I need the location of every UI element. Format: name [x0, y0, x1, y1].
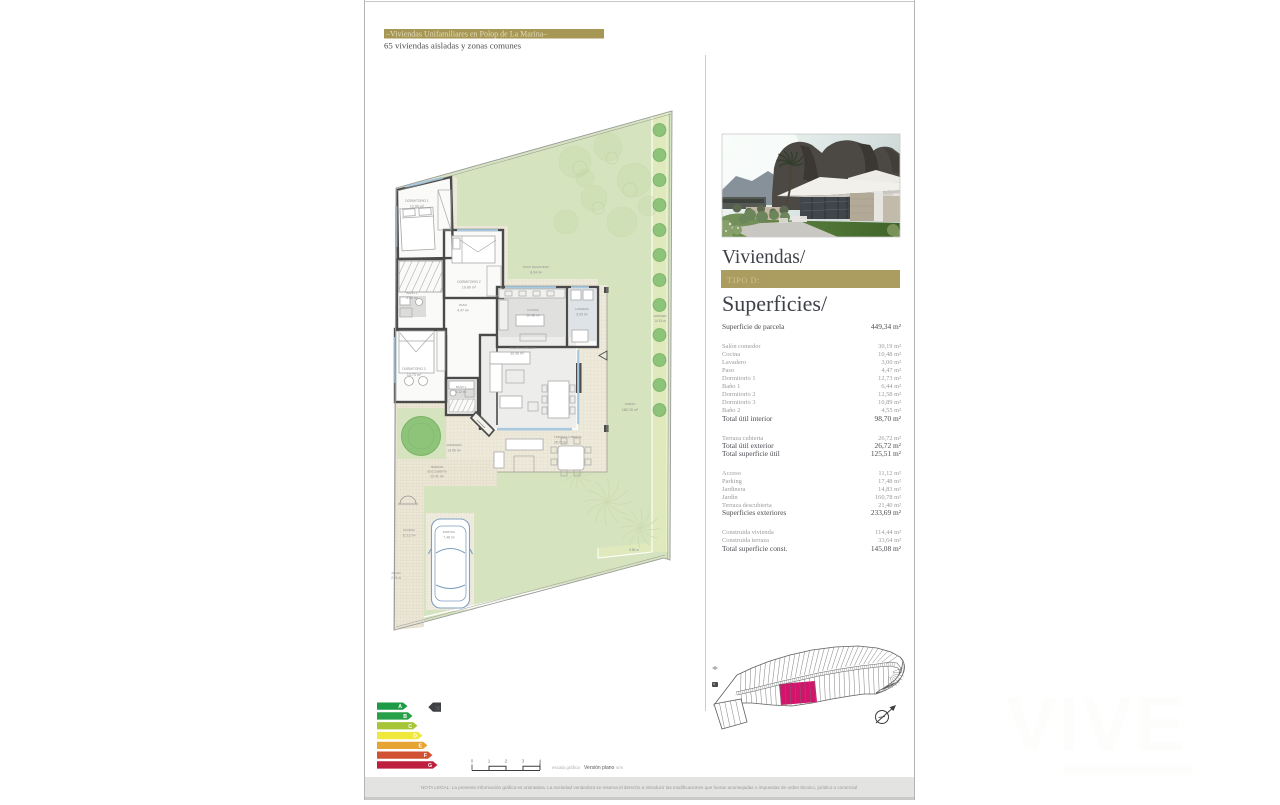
svg-text:Jardinera: Jardinera [722, 486, 746, 493]
svg-text:145,08 m²: 145,08 m² [871, 544, 902, 553]
svg-text:4.58 m²: 4.58 m² [406, 296, 418, 300]
svg-text:35: 35 [435, 705, 440, 710]
svg-text:Cocina: Cocina [722, 351, 740, 358]
svg-text:449,34 m²: 449,34 m² [871, 322, 902, 331]
svg-text:33,64 m²: 33,64 m² [878, 537, 901, 544]
svg-text:NOTA LEGAL: La presente inform: NOTA LEGAL: La presente información gráf… [421, 785, 857, 790]
svg-text:COCINA: COCINA [527, 308, 539, 312]
svg-text:PASO: PASO [459, 303, 468, 307]
svg-text:JARDINERA: JARDINERA [653, 315, 667, 318]
svg-text:JARDINERA: JARDINERA [446, 443, 462, 447]
svg-text:Dormitorio 2: Dormitorio 2 [722, 391, 756, 398]
svg-text:s/m: s/m [616, 765, 624, 770]
svg-text:Baño 1: Baño 1 [722, 383, 740, 390]
svg-text:233,69 m²: 233,69 m² [871, 508, 902, 517]
svg-text:DORMITORIO 2: DORMITORIO 2 [457, 280, 481, 284]
svg-text:BAÑO 2: BAÑO 2 [456, 384, 467, 389]
svg-text:3,00 m²: 3,00 m² [881, 359, 901, 366]
svg-text:Paso: Paso [722, 367, 734, 374]
svg-text:Construida vivienda: Construida vivienda [722, 529, 774, 536]
svg-text:4,47 m²: 4,47 m² [881, 367, 901, 374]
svg-text:Superficies exteriores: Superficies exteriores [722, 508, 786, 517]
svg-text:DORMITORIO 3: DORMITORIO 3 [402, 367, 426, 371]
svg-text:G: G [428, 763, 432, 769]
svg-text:Parking: Parking [722, 478, 743, 485]
svg-text:5.12 m²: 5.12 m² [456, 390, 467, 394]
svg-text:4.47 m²: 4.47 m² [457, 309, 469, 313]
svg-text:SALÓN COMEDOR: SALÓN COMEDOR [510, 345, 538, 350]
svg-text:E: E [419, 743, 423, 749]
svg-text:30.98 m²: 30.98 m² [510, 352, 525, 356]
svg-text:TERRAZA CUBIERTA: TERRAZA CUBIERTA [554, 435, 582, 439]
svg-text:Baño 2: Baño 2 [722, 407, 740, 414]
svg-text:6,44 m²: 6,44 m² [881, 383, 901, 390]
svg-text:Construida terraza: Construida terraza [722, 537, 769, 544]
svg-text:Dormitorio 1: Dormitorio 1 [722, 375, 756, 382]
svg-text:10.80 m²: 10.80 m² [462, 286, 477, 290]
svg-text:11.12 m²: 11.12 m² [402, 534, 416, 538]
svg-text:Salón comedor: Salón comedor [722, 343, 761, 350]
svg-text:3.00 m²: 3.00 m² [576, 313, 588, 317]
svg-text:Lavadero: Lavadero [722, 359, 746, 366]
svg-text:17,48 m²: 17,48 m² [878, 478, 901, 485]
svg-text:TIPO D:: TIPO D: [727, 275, 760, 285]
svg-text:11,12 m²: 11,12 m² [878, 470, 901, 477]
svg-text:Superficie de parcela: Superficie de parcela [722, 322, 785, 331]
svg-text:5.56 m: 5.56 m [629, 548, 639, 552]
svg-text:PATIO DELANTERO: PATIO DELANTERO [523, 265, 550, 269]
svg-text:65 viviendas aisladas y zonas: 65 viviendas aisladas y zonas comunes [384, 41, 522, 51]
svg-text:ACCESO: ACCESO [403, 528, 416, 532]
svg-text:8.04 m²: 8.04 m² [530, 271, 542, 275]
svg-text:LAVADERO: LAVADERO [575, 307, 589, 311]
svg-text:DESCUBIERTA: DESCUBIERTA [427, 470, 447, 474]
svg-text:12.41 m²: 12.41 m² [430, 475, 444, 479]
svg-text:BAÑO 1: BAÑO 1 [406, 290, 417, 295]
svg-text:Acceso: Acceso [722, 470, 741, 477]
svg-text:Total superficie const.: Total superficie const. [722, 544, 788, 553]
svg-text:escala gráfica: escala gráfica [552, 765, 580, 770]
svg-text:98,70 m²: 98,70 m² [875, 414, 902, 423]
svg-text:125,51 m²: 125,51 m² [871, 449, 902, 458]
svg-text:14.33 m: 14.33 m [654, 319, 666, 323]
svg-text:VIVE: VIVE [1006, 682, 1187, 767]
svg-text:TERRAZA: TERRAZA [430, 465, 443, 469]
svg-text:12,73 m²: 12,73 m² [878, 375, 901, 382]
svg-text:28.72 m²: 28.72 m² [554, 441, 568, 445]
svg-text:7.48 m²: 7.48 m² [443, 536, 455, 540]
svg-text:A: A [398, 704, 402, 710]
svg-text:2.01 m: 2.01 m [391, 576, 401, 580]
svg-text:ANCHO: ANCHO [391, 571, 400, 575]
svg-text:PARKING: PARKING [443, 530, 455, 534]
svg-text:Total útil interior: Total útil interior [722, 414, 773, 423]
svg-text:JARDÍN: JARDÍN [625, 402, 636, 406]
svg-text:180.78 m²: 180.78 m² [622, 408, 639, 412]
svg-text:C: C [408, 724, 412, 730]
svg-text:Superficies/: Superficies/ [722, 291, 828, 316]
svg-text:Viviendas/: Viviendas/ [722, 247, 806, 268]
svg-text:10,48 m²: 10,48 m² [878, 351, 901, 358]
svg-text:10,89 m²: 10,89 m² [878, 399, 901, 406]
svg-text:12.90 m²: 12.90 m² [410, 205, 425, 209]
svg-text:114,44 m²: 114,44 m² [875, 529, 901, 536]
svg-text:Total superficie útil: Total superficie útil [722, 449, 780, 458]
svg-text:D: D [413, 734, 417, 740]
svg-text:Jardín: Jardín [722, 494, 738, 501]
svg-text:160,78 m²: 160,78 m² [875, 494, 901, 501]
svg-text:4,55 m²: 4,55 m² [881, 407, 901, 414]
svg-text:13.06 m²: 13.06 m² [447, 449, 461, 453]
svg-text:Versión plano: Versión plano [584, 765, 615, 771]
svg-text:Dormitorio 3: Dormitorio 3 [722, 399, 756, 406]
svg-text:14.73 m²: 14.73 m² [407, 373, 422, 377]
svg-text:B: B [403, 714, 407, 720]
svg-text:12,58 m²: 12,58 m² [878, 391, 901, 398]
svg-text:DORMITORIO 1: DORMITORIO 1 [405, 199, 429, 203]
svg-text:30,19 m²: 30,19 m² [878, 343, 901, 350]
svg-text:–Viviendas Unifamiliares en Po: –Viviendas Unifamiliares en Polop de La … [385, 30, 548, 39]
svg-text:10.48 m²: 10.48 m² [526, 314, 540, 318]
svg-text:14,83 m²: 14,83 m² [878, 486, 901, 493]
svg-text:F: F [424, 753, 427, 759]
